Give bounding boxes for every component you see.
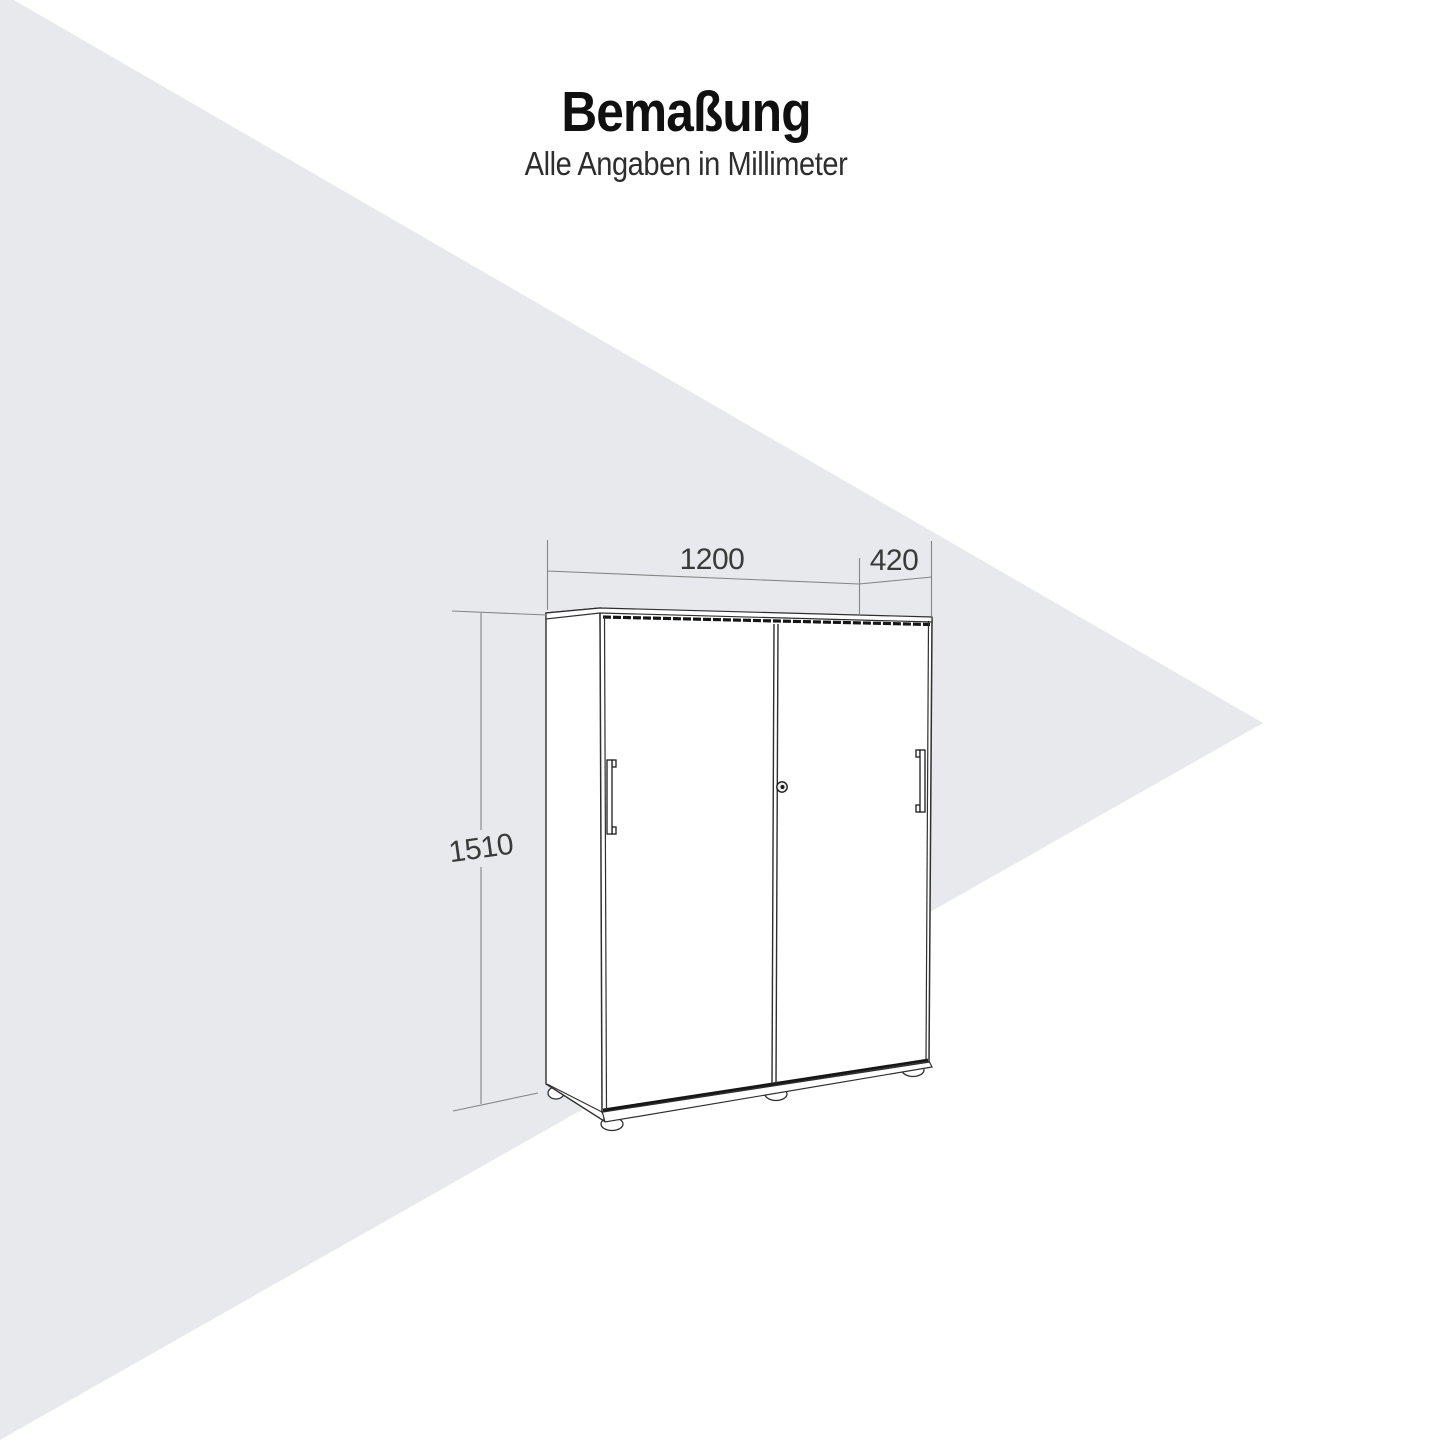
left-handle-bar: [607, 760, 612, 834]
page: Bemaßung Alle Angaben in Millimeter: [0, 0, 1445, 1445]
page-subtitle: Alle Angaben in Millimeter: [82, 145, 1289, 183]
depth-dimension-label: 420: [870, 544, 919, 577]
page-title: Bemaßung: [89, 82, 1283, 142]
width-dimension-label: 1200: [680, 543, 745, 576]
dimension-drawing: 1200 420 1510: [0, 0, 1445, 1445]
lock-icon: [777, 782, 787, 792]
cabinet-front-face: [600, 611, 932, 1112]
cabinet-side-panel: [546, 608, 604, 1121]
header: Bemaßung Alle Angaben in Millimeter: [0, 82, 1372, 183]
lock-keyhole: [780, 785, 784, 789]
right-handle-bar: [920, 750, 925, 812]
